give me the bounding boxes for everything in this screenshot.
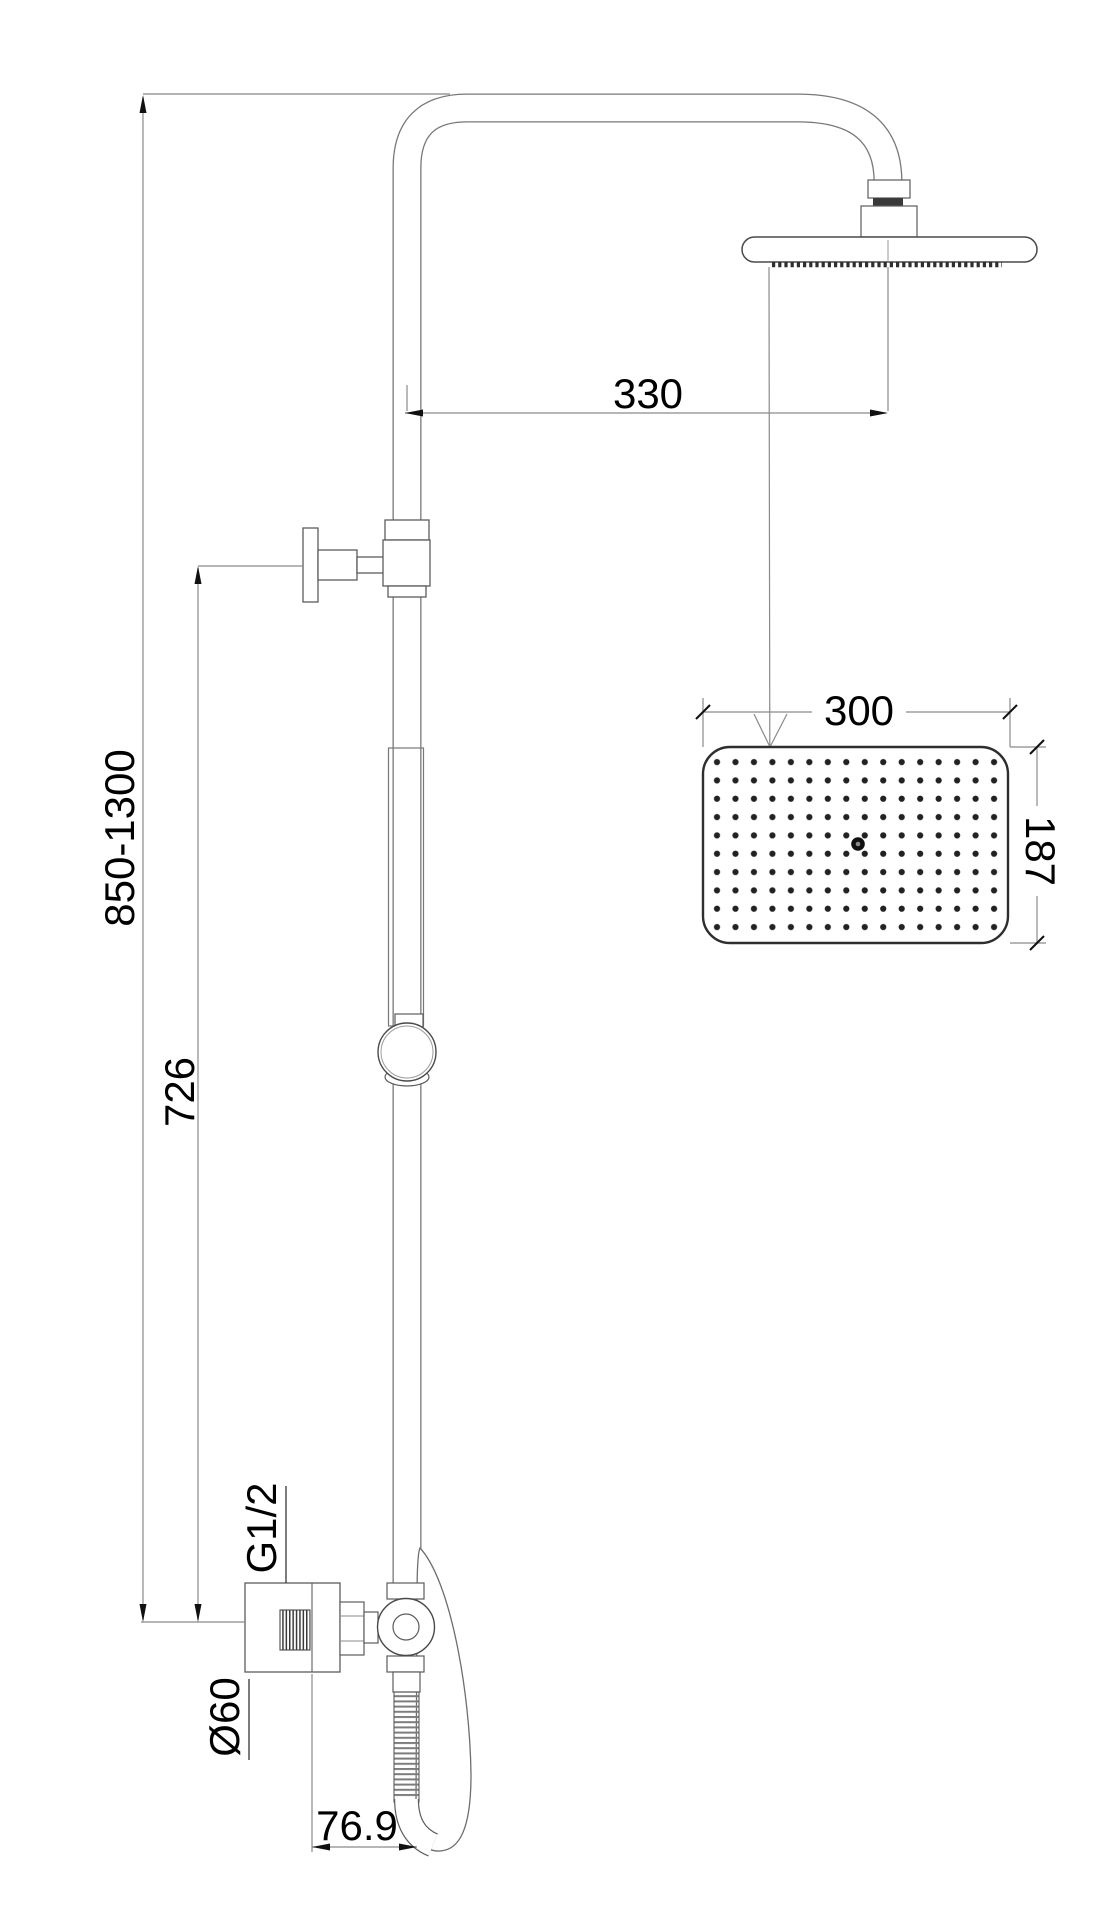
bracket-body bbox=[383, 540, 430, 586]
dim-head-depth-label: 187 bbox=[1019, 816, 1061, 886]
dim-head-width-label: 300 bbox=[824, 690, 894, 732]
valve-bottom-cap bbox=[387, 1656, 424, 1672]
head-mount bbox=[861, 206, 917, 237]
overhead-shower-side-view bbox=[742, 180, 1037, 265]
dim-outlet-offset-label: 76.9 bbox=[316, 1805, 398, 1847]
detail-leader bbox=[754, 267, 787, 747]
dim-height-range bbox=[141, 97, 245, 1622]
hose-nipple bbox=[393, 1672, 420, 1692]
dim-bracket-drop-label: 726 bbox=[159, 1057, 201, 1127]
head-face-detail-view bbox=[696, 698, 1046, 950]
dim-inlet-thread-label: G1/2 bbox=[241, 1482, 283, 1573]
upper-wall-bracket bbox=[303, 520, 430, 602]
g12-thread bbox=[280, 1610, 310, 1650]
dim-plate-diameter-label: Ø60 bbox=[204, 1677, 246, 1756]
arm-nut bbox=[868, 180, 910, 198]
hex-nut bbox=[340, 1602, 364, 1655]
slider-knob bbox=[378, 1023, 436, 1081]
diverter-handle-wheel bbox=[378, 1599, 435, 1656]
dim-height-range-label: 850-1300 bbox=[99, 749, 141, 927]
bracket-collar bbox=[385, 520, 429, 540]
bracket-neck bbox=[357, 557, 385, 573]
arm-thread bbox=[873, 198, 903, 206]
bracket-lower-collar bbox=[388, 586, 426, 597]
shower-hose bbox=[394, 1692, 419, 1802]
drawing-linework bbox=[0, 0, 1109, 1920]
shower-column-technical-drawing: 850-1300 726 330 300 187 G1/2 Ø60 76.9 c… bbox=[0, 0, 1109, 1920]
bracket-arm bbox=[318, 550, 357, 580]
dim-bracket-drop bbox=[198, 566, 303, 1620]
bracket-wall-flange bbox=[303, 528, 318, 602]
valve-top-cap bbox=[387, 1583, 424, 1599]
head-disc bbox=[742, 237, 1037, 262]
dim-arm-offset-label: 330 bbox=[613, 373, 683, 415]
valve-neck bbox=[364, 1612, 378, 1643]
